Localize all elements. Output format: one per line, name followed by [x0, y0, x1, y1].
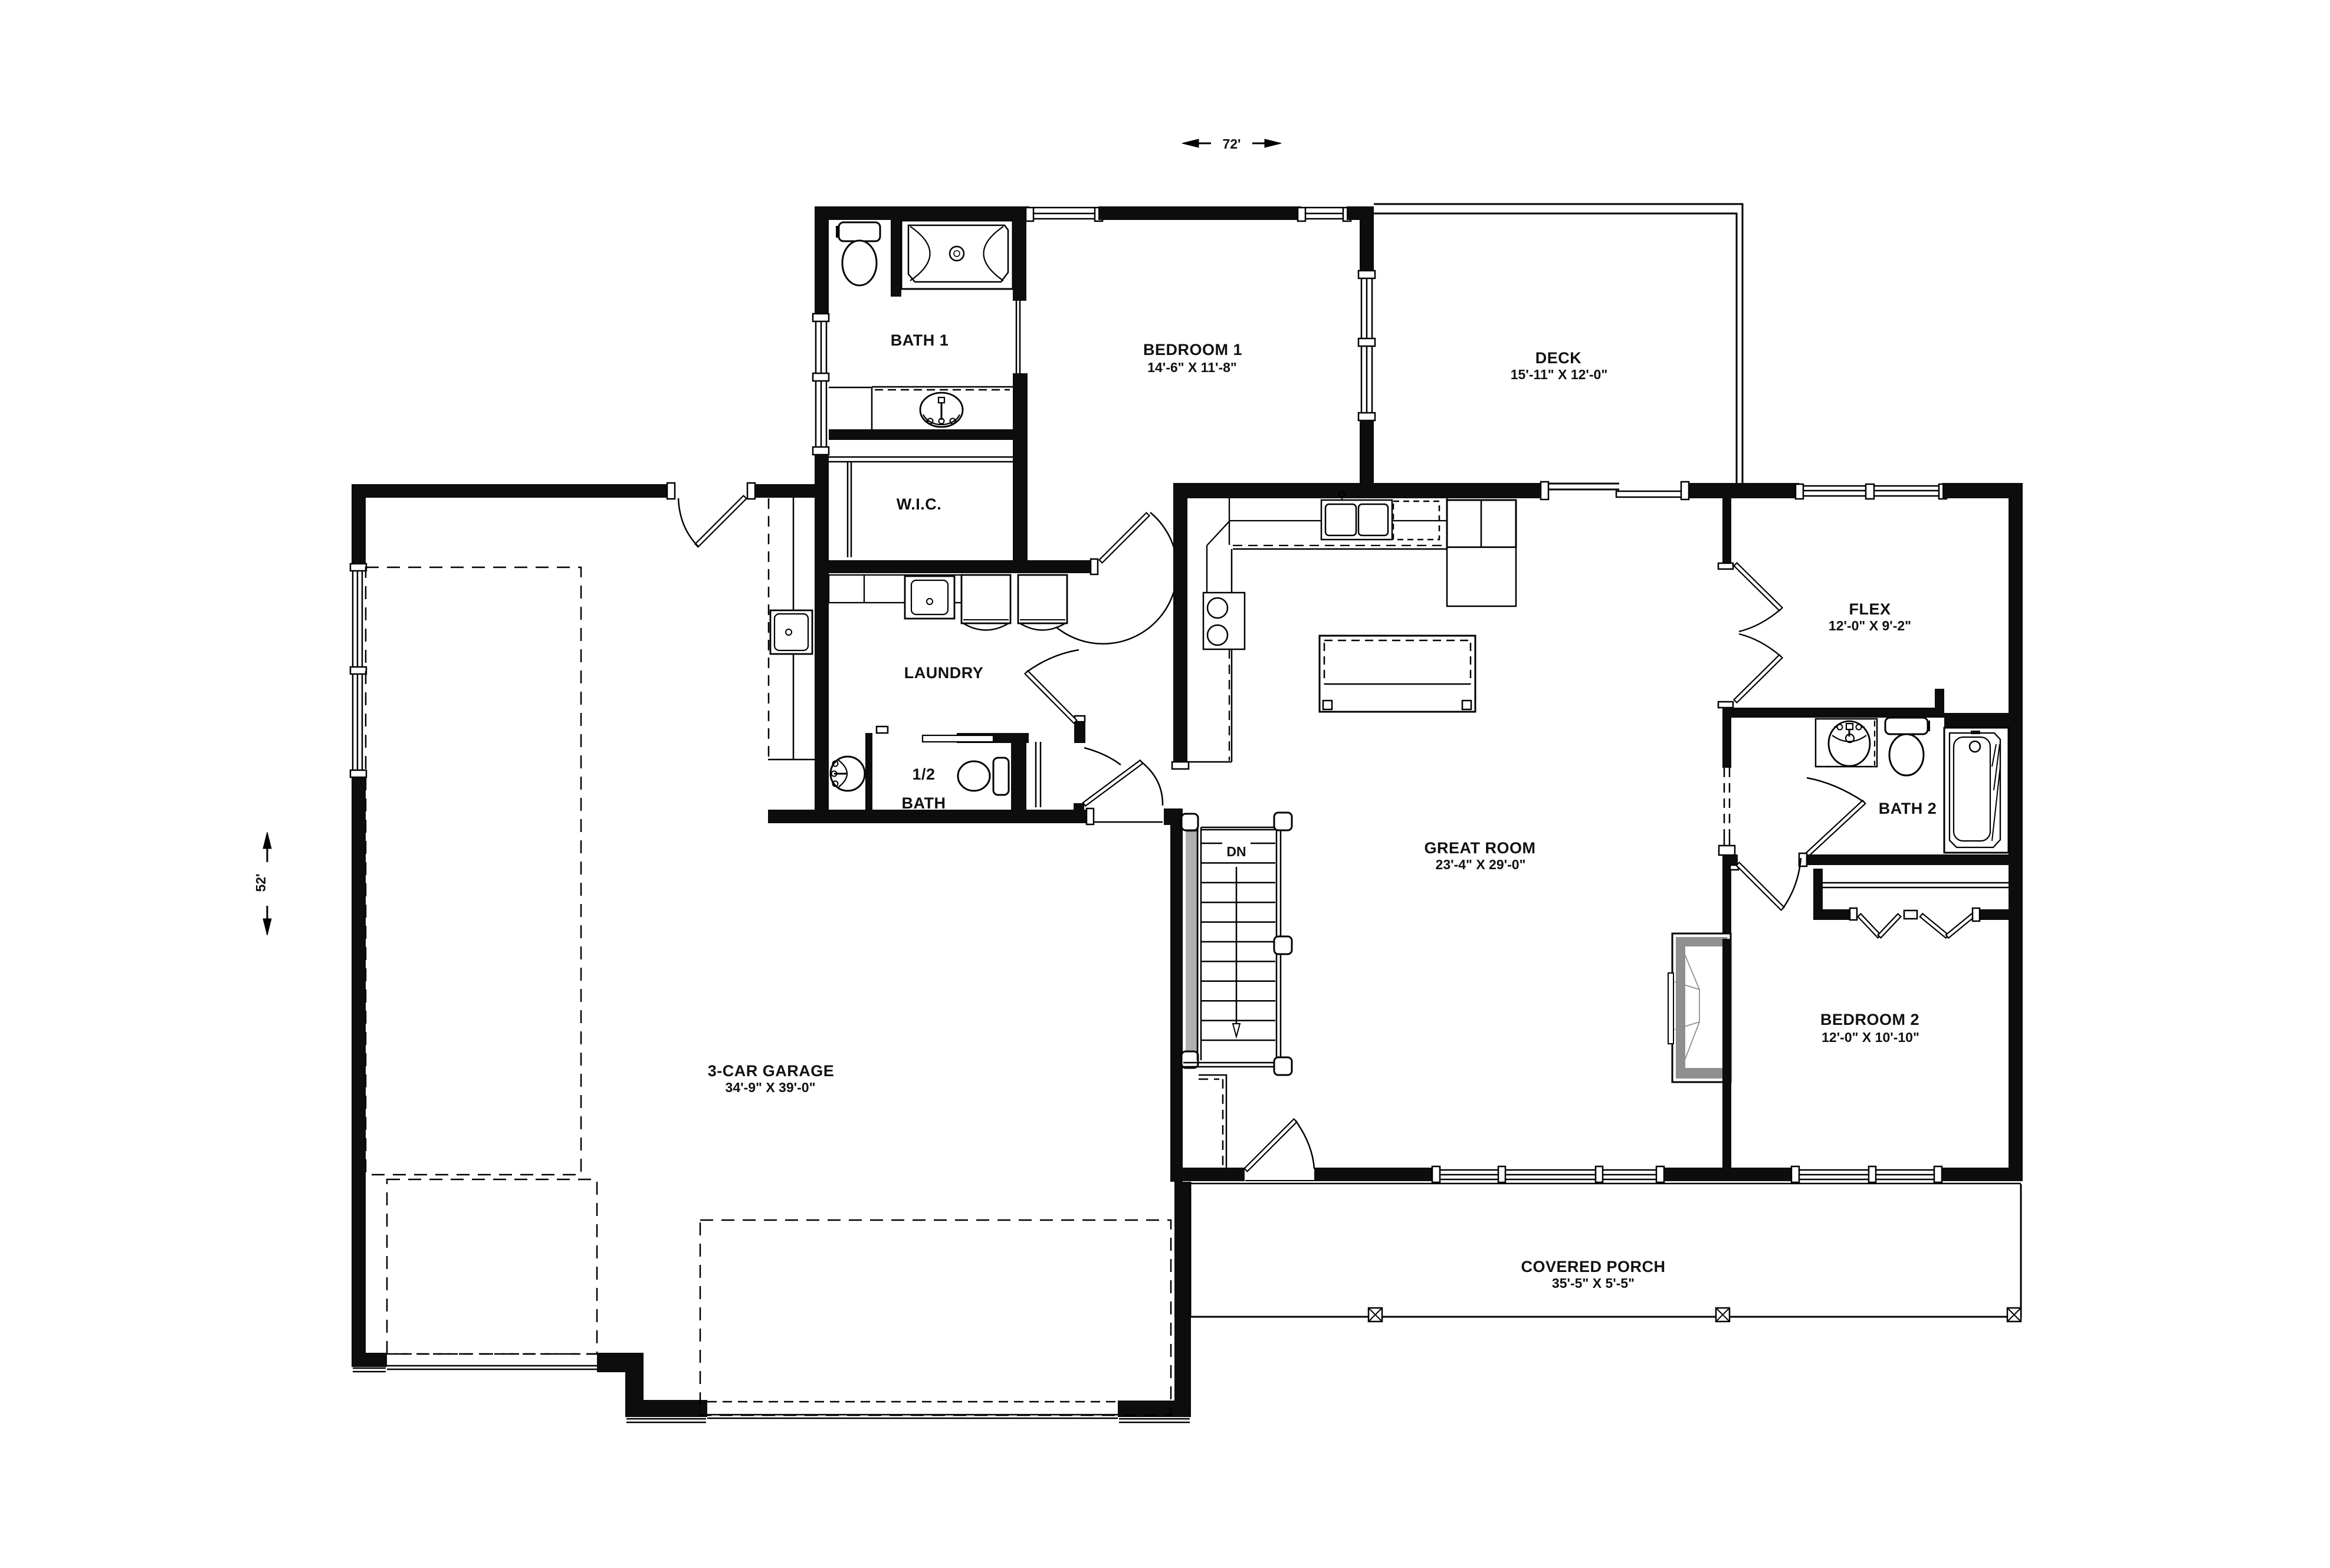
svg-text:12'-0" X 9'-2": 12'-0" X 9'-2" [1829, 618, 1911, 633]
svg-text:BATH 1: BATH 1 [891, 331, 949, 349]
svg-text:FLEX: FLEX [1849, 600, 1891, 618]
svg-text:72': 72' [1222, 136, 1241, 152]
svg-text:23'-4" X 29'-0": 23'-4" X 29'-0" [1436, 857, 1526, 872]
svg-text:12'-0" X 10'-10": 12'-0" X 10'-10" [1822, 1030, 1919, 1045]
svg-text:LAUNDRY: LAUNDRY [904, 664, 984, 682]
svg-text:BATH: BATH [902, 794, 946, 812]
svg-text:52': 52' [253, 873, 268, 892]
svg-text:W.I.C.: W.I.C. [897, 495, 942, 513]
svg-text:BATH 2: BATH 2 [1879, 800, 1937, 817]
svg-text:GREAT ROOM: GREAT ROOM [1425, 839, 1536, 857]
svg-text:3-CAR GARAGE: 3-CAR GARAGE [708, 1062, 835, 1080]
svg-text:14'-6" X 11'-8": 14'-6" X 11'-8" [1147, 360, 1237, 375]
svg-text:BEDROOM 2: BEDROOM 2 [1820, 1011, 1919, 1028]
svg-text:34'-9" X 39'-0": 34'-9" X 39'-0" [726, 1080, 816, 1095]
svg-text:1/2: 1/2 [912, 765, 935, 783]
svg-text:15'-11" X 12'-0": 15'-11" X 12'-0" [1511, 367, 1607, 382]
svg-text:DN: DN [1226, 844, 1246, 859]
svg-text:35'-5" X 5'-5": 35'-5" X 5'-5" [1552, 1276, 1635, 1291]
svg-text:COVERED PORCH: COVERED PORCH [1521, 1258, 1665, 1276]
svg-text:BEDROOM 1: BEDROOM 1 [1143, 341, 1242, 359]
svg-text:DECK: DECK [1535, 349, 1582, 367]
